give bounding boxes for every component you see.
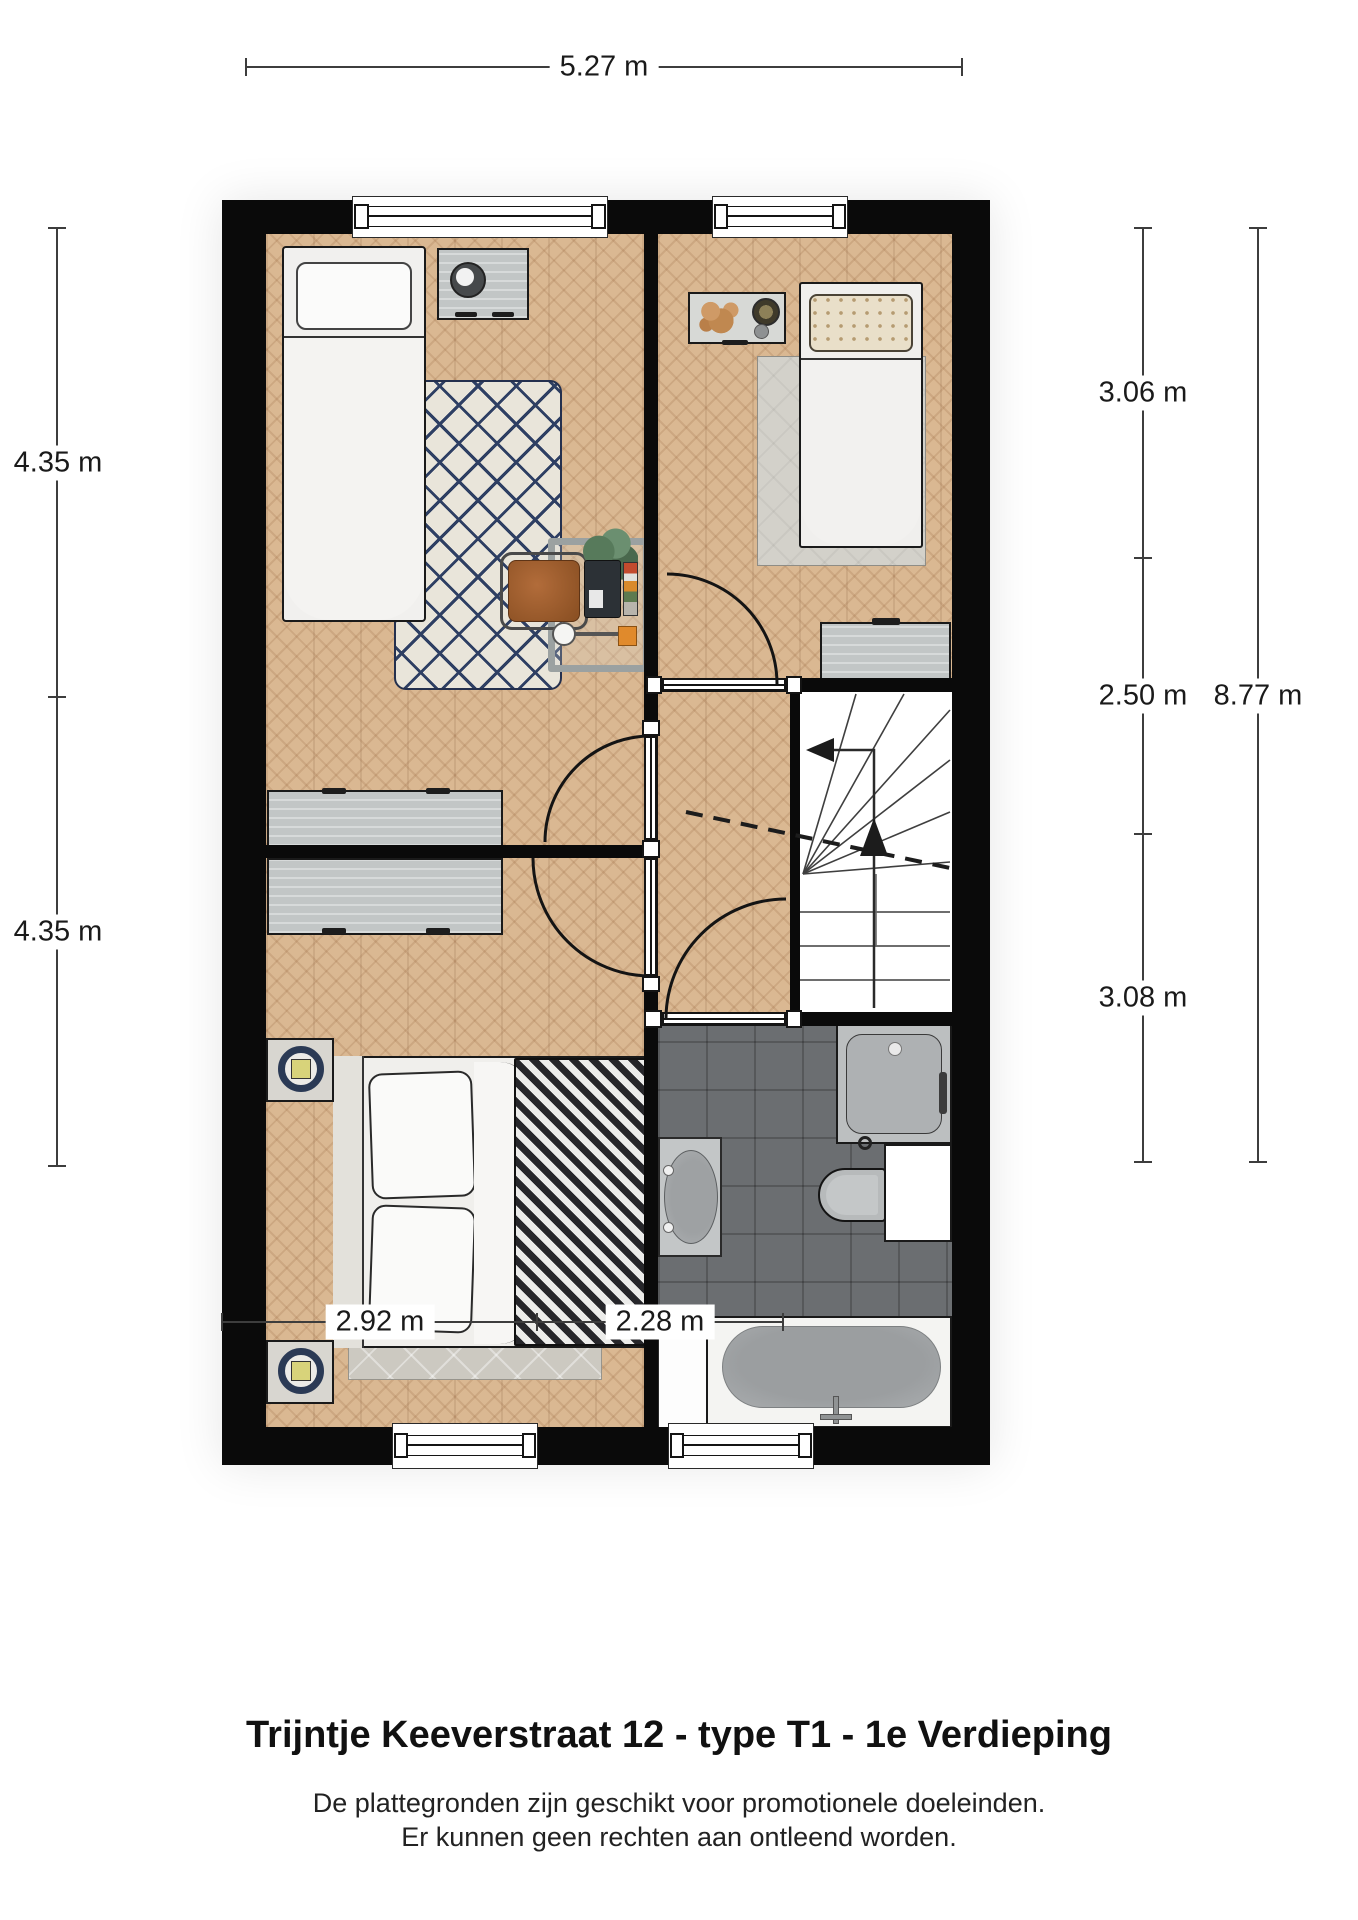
dim-label-left-1: 4.35 m <box>4 446 113 481</box>
dim-tick <box>48 696 66 698</box>
dim-tick <box>782 1313 784 1331</box>
dim-label-right-1: 3.06 m <box>1089 376 1198 411</box>
dim-tick <box>1134 227 1152 229</box>
door-arc-master-bedroom <box>533 858 651 976</box>
door-arc-bedroom-2 <box>667 574 777 684</box>
disclaimer-line-1: De plattegronden zijn geschikt voor prom… <box>0 1788 1358 1819</box>
stairs-exit-arrow-icon <box>806 738 834 762</box>
dim-tick <box>48 1165 66 1167</box>
dim-label-right-2: 2.50 m <box>1089 679 1198 714</box>
plan-linework <box>0 0 1358 1920</box>
page-title: Trijntje Keeverstraat 12 - type T1 - 1e … <box>0 1714 1358 1757</box>
dim-label-bottom-2: 2.28 m <box>606 1305 715 1340</box>
stair-walkline <box>814 750 874 1008</box>
dim-tick <box>245 58 247 76</box>
dim-tick <box>1134 557 1152 559</box>
dim-label-right-3: 3.08 m <box>1089 981 1198 1016</box>
dim-tick <box>48 227 66 229</box>
dim-label-bottom-1: 2.92 m <box>326 1305 435 1340</box>
dim-tick <box>1134 833 1152 835</box>
dim-tick <box>1249 227 1267 229</box>
floorplan-page: 5.27 m 4.35 m 4.35 m 3.06 m 2.50 m 3.08 … <box>0 0 1358 1920</box>
dim-label-top-width: 5.27 m <box>550 50 659 85</box>
dim-tick <box>536 1313 538 1331</box>
dim-tick <box>221 1313 223 1331</box>
dim-tick <box>961 58 963 76</box>
door-arc-bathroom <box>666 899 786 1019</box>
dim-label-left-2: 4.35 m <box>4 915 113 950</box>
dim-label-right-total: 8.77 m <box>1204 679 1313 714</box>
disclaimer-line-2: Er kunnen geen rechten aan ontleend word… <box>0 1822 1358 1853</box>
door-arc-bedroom-1 <box>545 736 651 842</box>
dim-tick <box>1134 1161 1152 1163</box>
dim-tick <box>1249 1161 1267 1163</box>
